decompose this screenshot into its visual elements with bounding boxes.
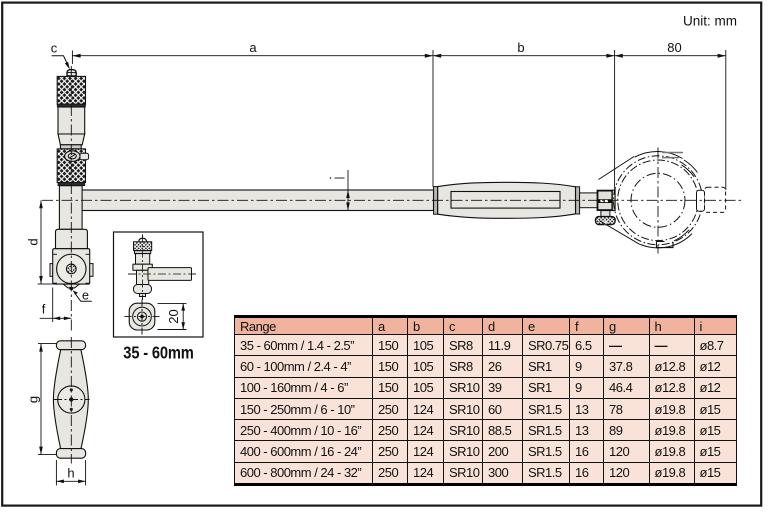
svg-text:20: 20 <box>166 309 181 323</box>
svg-text:80: 80 <box>667 40 681 55</box>
svg-text:d: d <box>26 238 41 245</box>
svg-text:f: f <box>42 302 46 317</box>
svg-text:a: a <box>249 40 257 55</box>
svg-text:e: e <box>82 289 89 303</box>
svg-text:35 - 60mm: 35 - 60mm <box>123 343 193 362</box>
svg-text:c: c <box>51 41 58 56</box>
svg-text:b: b <box>517 40 524 55</box>
svg-text:Unit: mm: Unit: mm <box>683 14 737 29</box>
